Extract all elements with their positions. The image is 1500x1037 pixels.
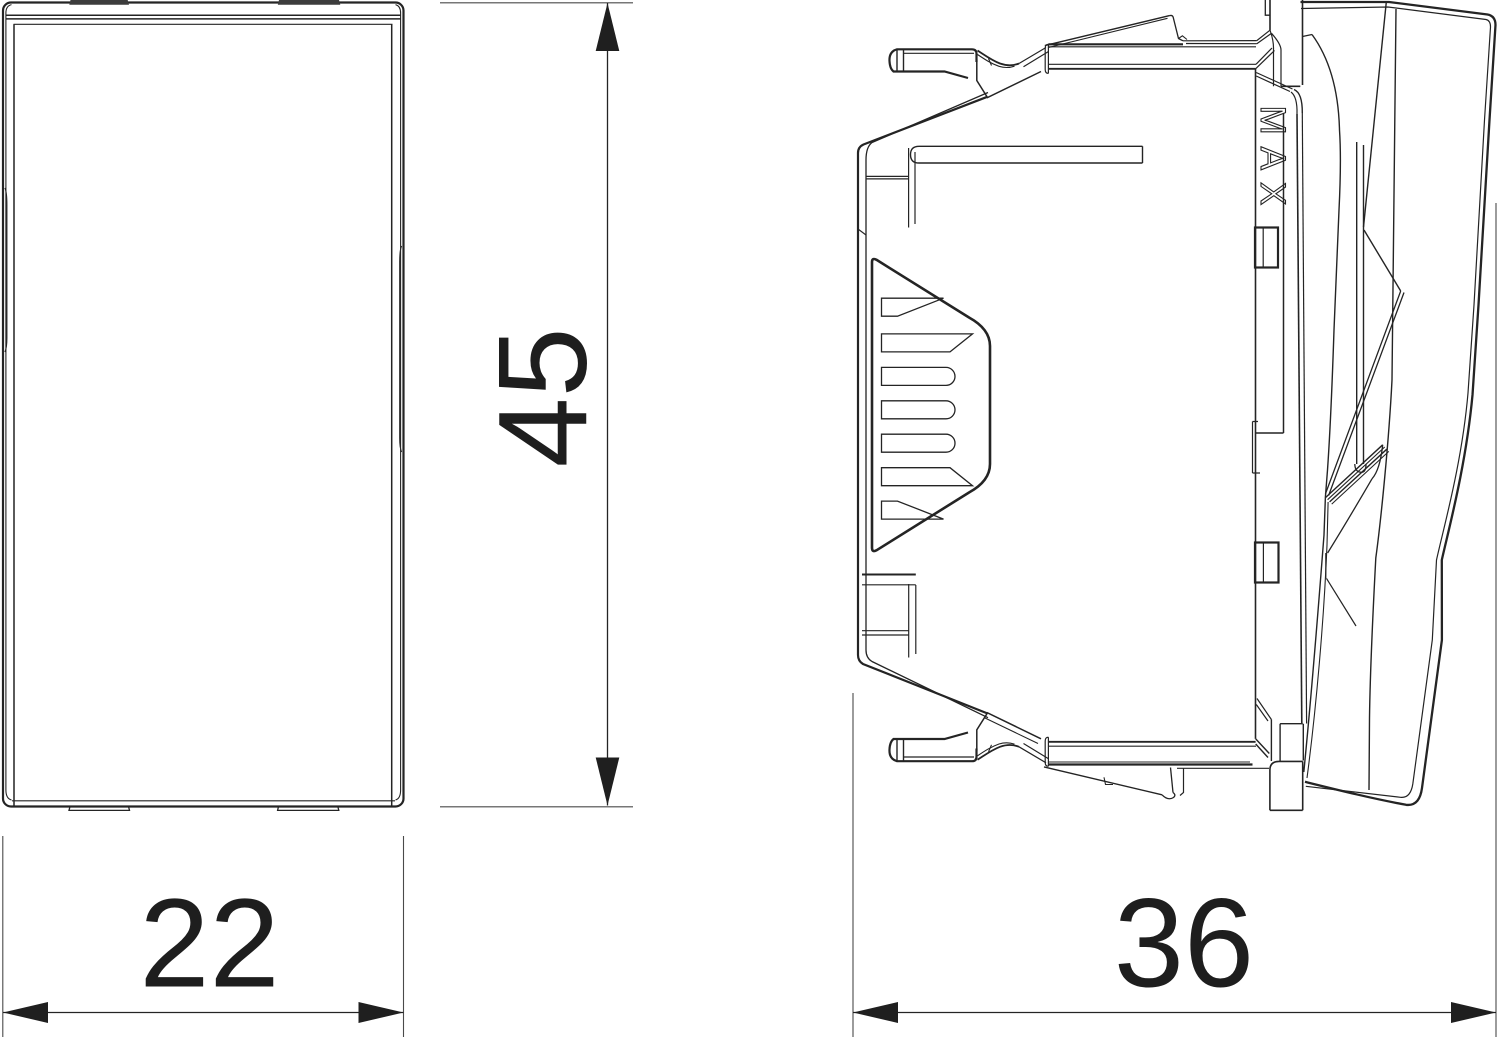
svg-text:22: 22 bbox=[139, 873, 279, 1014]
svg-text:MAX: MAX bbox=[1253, 106, 1292, 218]
svg-text:36: 36 bbox=[1114, 872, 1254, 1013]
svg-text:45: 45 bbox=[472, 327, 613, 467]
